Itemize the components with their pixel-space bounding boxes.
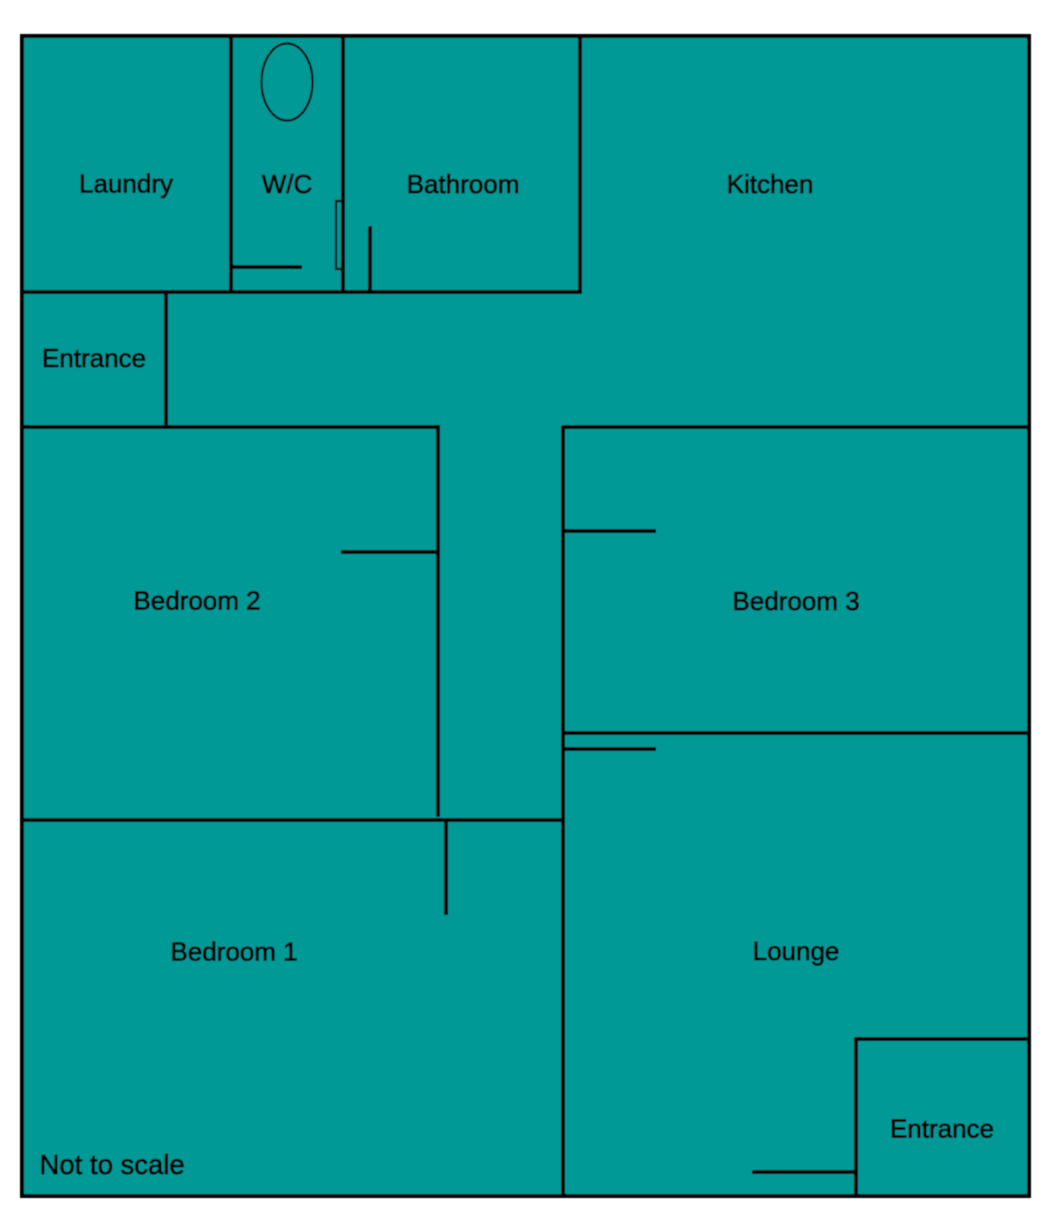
svg-text:Entrance: Entrance xyxy=(890,1114,994,1144)
svg-text:Lounge: Lounge xyxy=(753,936,840,966)
svg-text:Bedroom 2: Bedroom 2 xyxy=(133,586,260,616)
svg-text:Kitchen: Kitchen xyxy=(727,169,814,199)
svg-text:Bathroom: Bathroom xyxy=(407,169,520,199)
svg-text:Bedroom 3: Bedroom 3 xyxy=(732,586,859,616)
svg-text:W/C: W/C xyxy=(262,169,313,199)
svg-text:Laundry: Laundry xyxy=(79,169,173,199)
svg-text:Not to scale: Not to scale xyxy=(40,1149,185,1180)
svg-text:Bedroom 1: Bedroom 1 xyxy=(170,937,297,967)
svg-text:Entrance: Entrance xyxy=(42,343,146,373)
